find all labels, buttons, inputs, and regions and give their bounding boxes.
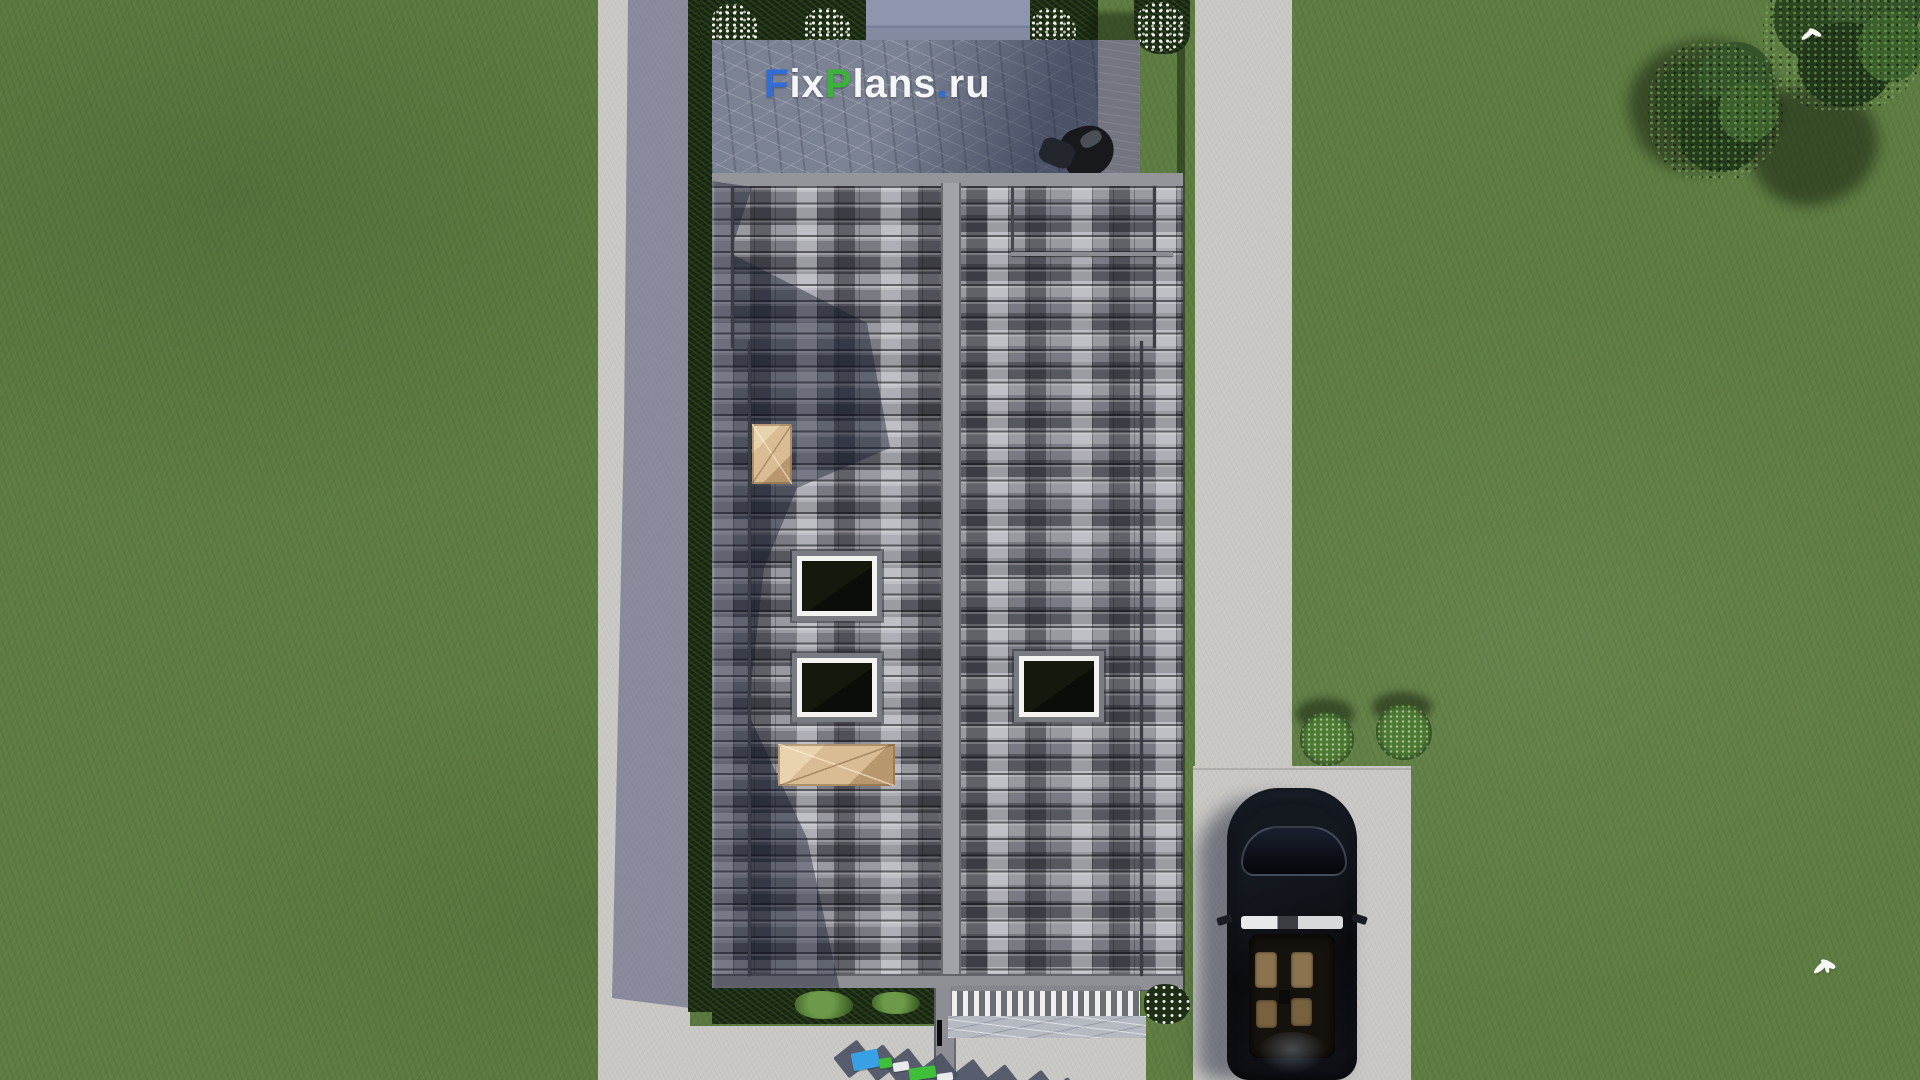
terrace-marble-strip: [948, 1016, 1146, 1038]
patio-sunlit-strip: [1098, 40, 1140, 178]
letter-shadow: [833, 1040, 873, 1079]
roof-eave-top: [712, 173, 1183, 188]
hedge-strip-left-of-house: [688, 0, 714, 1012]
car-seat: [1256, 1000, 1277, 1028]
letter-face-green: [908, 1065, 936, 1080]
logo-segment: P: [825, 62, 853, 106]
roof-window-glass: [797, 658, 877, 717]
car-mirror-left: [1216, 914, 1233, 926]
garden-bush: [1300, 712, 1354, 766]
white-flower-cluster: [1136, 2, 1186, 52]
letter-shadow: [946, 1059, 991, 1080]
tree-shadow: [1729, 63, 1897, 226]
roof-ridge: [941, 183, 961, 979]
car-seat: [1255, 952, 1277, 988]
roof-window: [1014, 651, 1104, 722]
low-bush: [872, 992, 920, 1014]
letter-face-white: [892, 1061, 909, 1072]
roof-window: [792, 551, 882, 621]
hedge-patch-corner: [1134, 0, 1190, 54]
letter-face-white: [937, 1072, 954, 1080]
roof-plane-right: [957, 186, 1183, 976]
logo-segment: .: [937, 62, 949, 106]
right-walk-path: [1195, 0, 1292, 772]
letter-shadow: [977, 1064, 1024, 1080]
car-windshield: [1241, 916, 1343, 929]
logo-segment: F: [764, 62, 789, 106]
roof-window-glass: [1019, 656, 1099, 717]
tree-shadow-on-roof: [712, 173, 1183, 990]
logo-segment: ix: [789, 62, 824, 106]
roof-window-glass: [797, 556, 877, 616]
low-bush: [795, 991, 853, 1019]
car-seat: [1291, 952, 1313, 988]
wall-gap: [937, 1020, 942, 1046]
roof-eave-bottom: [712, 974, 1183, 991]
tree-canopy: [1763, 0, 1920, 112]
logo-segment: lans: [852, 62, 936, 106]
garden-bush: [1376, 704, 1432, 760]
letter-face-blue: [851, 1049, 881, 1072]
aerial-house-render: FixPlans.ru: [0, 0, 1920, 1080]
bush-shadow: [1372, 692, 1432, 722]
car-trunk: [1241, 826, 1347, 876]
chimney-small: [752, 424, 792, 484]
hedge-bed-bottom: [712, 988, 938, 1024]
white-bird: [1800, 24, 1826, 46]
roof-snow-guard-bar: [1011, 252, 1173, 256]
site-watermark-logo: FixPlans.ru: [764, 62, 1024, 108]
car-seat: [1291, 998, 1312, 1026]
party-wall: [934, 988, 956, 1080]
car-mirror-right: [1351, 913, 1368, 925]
roof-pipe: [731, 186, 734, 348]
tree-shadow: [1614, 20, 1797, 190]
black-convertible-car: [1227, 788, 1357, 1080]
bush-shadow: [1296, 698, 1354, 730]
driveway-seam: [1193, 768, 1411, 770]
car-cabin: [1249, 934, 1335, 1058]
stone-patio: [712, 40, 1140, 178]
bottom-pavement: [598, 1026, 1146, 1080]
logo-segment: ru: [949, 62, 991, 106]
roof-pipe: [1140, 341, 1143, 976]
pergola-slats: [952, 986, 1140, 1027]
house-roof: [712, 173, 1183, 990]
chimney-wide: [778, 744, 895, 786]
roof-pipe: [1153, 186, 1156, 348]
letter-shadow: [1013, 1070, 1057, 1080]
letter-shadow: [861, 1044, 899, 1080]
roof-pipe: [748, 341, 751, 976]
letter-shadow: [914, 1053, 959, 1080]
white-flower-bush: [1144, 984, 1190, 1024]
ground-watermark-3d: [830, 1038, 1090, 1080]
white-bird: [1810, 954, 1840, 980]
house-shadow-on-path: [598, 0, 690, 1080]
letter-face-green: [878, 1057, 892, 1069]
tree-canopy: [1648, 42, 1783, 182]
patio-shadow-overlay: [712, 40, 1140, 178]
letter-shadow: [885, 1048, 926, 1080]
roof-window: [792, 653, 882, 722]
roof-snow-guard: [1011, 186, 1014, 254]
car-console: [1279, 990, 1290, 1004]
left-walk-path: [598, 0, 690, 1080]
